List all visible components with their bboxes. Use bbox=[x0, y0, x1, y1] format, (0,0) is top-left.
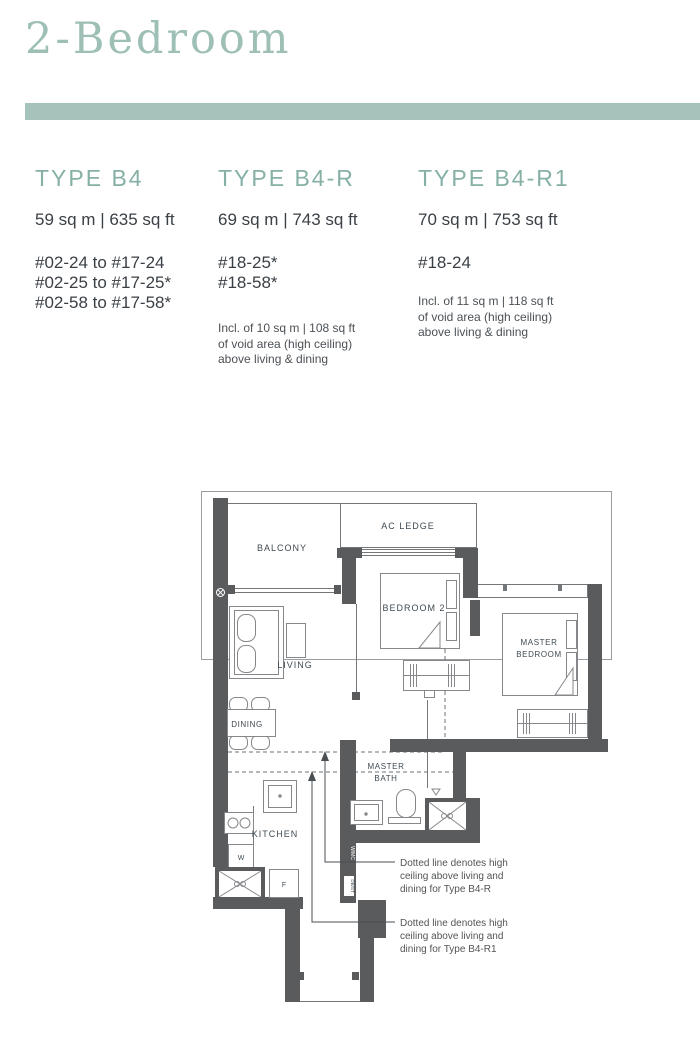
type-b4-column: TYPE B4 59 sq m | 635 sq ft #02-24 to #1… bbox=[35, 166, 215, 313]
floor-plan: W/MC DB/ST BALCONY AC LEDGE BEDROOM 2 MA… bbox=[195, 485, 625, 1020]
unit-range: #18-25* bbox=[218, 253, 398, 273]
window-mullion bbox=[503, 584, 507, 591]
room-label-bedroom2: BEDROOM 2 bbox=[382, 603, 445, 613]
room-label-master-bath: BATH bbox=[374, 774, 397, 783]
room-label-balcony: BALCONY bbox=[257, 543, 307, 553]
shaft-icon bbox=[217, 869, 263, 899]
annotation-b4r: Dotted line denotes high ceiling above l… bbox=[400, 858, 508, 895]
type-name: TYPE B4-R bbox=[218, 166, 398, 190]
room-label-living: LIVING bbox=[277, 660, 313, 670]
type-name: TYPE B4 bbox=[35, 166, 215, 190]
window-mullion bbox=[558, 584, 562, 591]
svg-text:dining for Type B4-R: dining for Type B4-R bbox=[400, 884, 491, 895]
room-label-dining: DINING bbox=[231, 720, 263, 729]
brochure-page: 2-Bedroom TYPE B4 59 sq m | 635 sq ft #0… bbox=[0, 0, 700, 1062]
annotation-b4r1: Dotted line denotes high ceiling above l… bbox=[400, 918, 508, 955]
bedroom2-furniture bbox=[381, 574, 470, 698]
shaft-icon bbox=[427, 800, 468, 832]
floor-plan-drawing: W/MC DB/ST BALCONY AC LEDGE BEDROOM 2 MA… bbox=[195, 485, 625, 1015]
washer-label: W bbox=[238, 855, 245, 862]
master-bedroom-furniture bbox=[503, 614, 588, 738]
room-label-master-bedroom: MASTER bbox=[521, 638, 558, 647]
fridge-label: F bbox=[282, 882, 286, 889]
drain-marker-icon bbox=[214, 586, 227, 599]
unit-list: #18-25* #18-58* bbox=[218, 253, 398, 293]
room-label-kitchen: KITCHEN bbox=[252, 829, 299, 839]
room-label-master-bedroom: BEDROOM bbox=[516, 650, 562, 659]
type-area: 59 sq m | 635 sq ft bbox=[35, 210, 215, 230]
riser-label: DB/ST bbox=[350, 879, 355, 893]
svg-text:ceiling above living and: ceiling above living and bbox=[400, 931, 503, 942]
room-label-ac-ledge: AC LEDGE bbox=[381, 521, 435, 531]
unit-range: #02-25 to #17-25* bbox=[35, 273, 215, 293]
svg-text:dining for Type B4-R1: dining for Type B4-R1 bbox=[400, 944, 497, 955]
accent-bar bbox=[25, 103, 700, 120]
svg-text:Dotted line denotes high: Dotted line denotes high bbox=[400, 918, 508, 929]
void-note: Incl. of 11 sq m | 118 sq ft of void are… bbox=[418, 294, 598, 341]
page-title: 2-Bedroom bbox=[25, 14, 292, 64]
type-name: TYPE B4-R1 bbox=[418, 166, 598, 190]
riser-boxes: W/MC DB/ST bbox=[343, 837, 355, 897]
svg-text:Dotted line denotes high: Dotted line denotes high bbox=[400, 858, 508, 869]
room-label-master-bath: MASTER bbox=[368, 762, 405, 771]
type-area: 70 sq m | 753 sq ft bbox=[418, 210, 598, 230]
unit-list: #18-24 bbox=[418, 253, 598, 273]
void-note: Incl. of 10 sq m | 108 sq ft of void are… bbox=[218, 321, 398, 368]
unit-range: #18-58* bbox=[218, 273, 398, 293]
type-b4r-column: TYPE B4-R 69 sq m | 743 sq ft #18-25* #1… bbox=[218, 166, 398, 368]
riser-label: W/MC bbox=[349, 846, 355, 860]
unit-range: #02-58 to #17-58* bbox=[35, 293, 215, 313]
unit-list: #02-24 to #17-24 #02-25 to #17-25* #02-5… bbox=[35, 253, 215, 313]
type-b4r1-column: TYPE B4-R1 70 sq m | 753 sq ft #18-24 In… bbox=[418, 166, 598, 341]
unit-range: #02-24 to #17-24 bbox=[35, 253, 215, 273]
type-area: 69 sq m | 743 sq ft bbox=[218, 210, 398, 230]
svg-text:ceiling above living and: ceiling above living and bbox=[400, 871, 503, 882]
unit-range: #18-24 bbox=[418, 253, 598, 273]
